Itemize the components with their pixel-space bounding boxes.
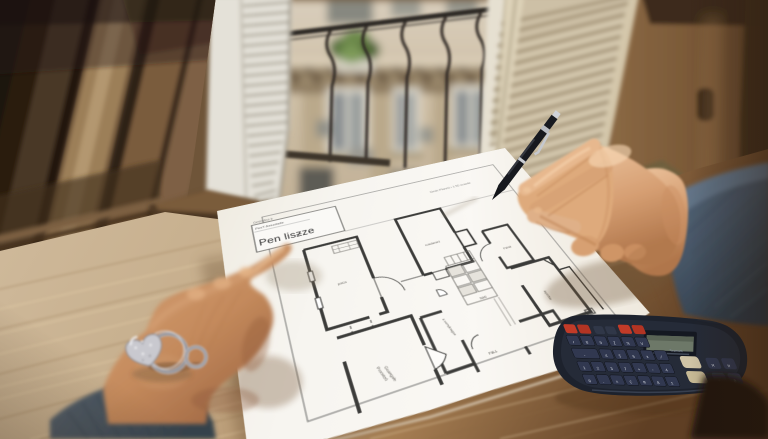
svg-text:Tezmust: Tezmust [669,349,683,353]
